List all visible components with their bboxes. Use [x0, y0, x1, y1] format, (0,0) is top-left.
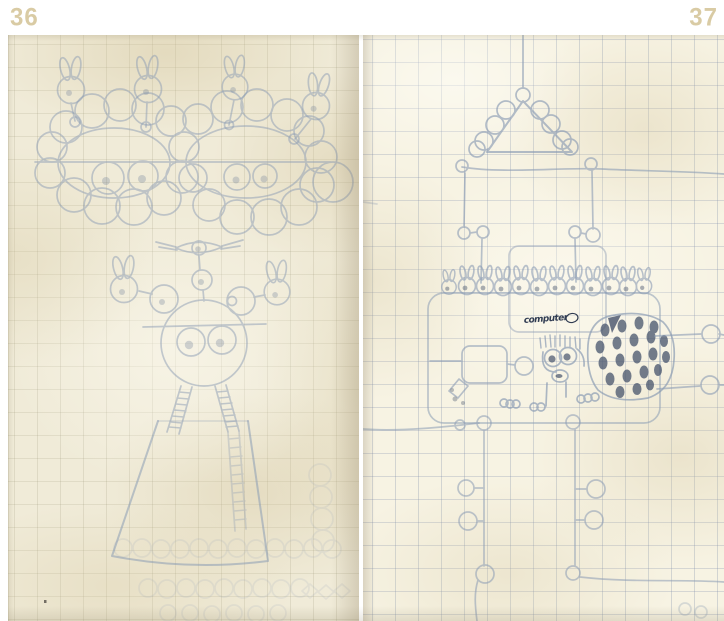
- roof-triangle: [469, 35, 578, 157]
- bunny-row: [442, 265, 652, 295]
- page-number-right: 37: [689, 3, 718, 32]
- left-page-drawing: [8, 35, 359, 621]
- pig-figure: [111, 240, 290, 531]
- top-wire-and-knots: [363, 158, 724, 283]
- page-number-left: 36: [10, 3, 39, 32]
- computer-boxes: [428, 246, 660, 423]
- annotation-text: computer: [524, 313, 570, 326]
- spotted-egg: [588, 314, 675, 400]
- sketchbook-page-right: computer: [363, 35, 724, 621]
- mouse-box: [430, 346, 533, 405]
- bubble-glasses-creature: [35, 89, 353, 235]
- sketchbook-scan: 36 37: [0, 0, 724, 621]
- right-page-drawing: computer: [363, 35, 724, 621]
- paper-speck: [44, 600, 47, 603]
- handwritten-annotation: computer: [524, 313, 579, 326]
- circuit-legs: [363, 415, 724, 621]
- spiky-creature-face: [500, 335, 599, 411]
- sketchbook-page-left: [8, 35, 359, 621]
